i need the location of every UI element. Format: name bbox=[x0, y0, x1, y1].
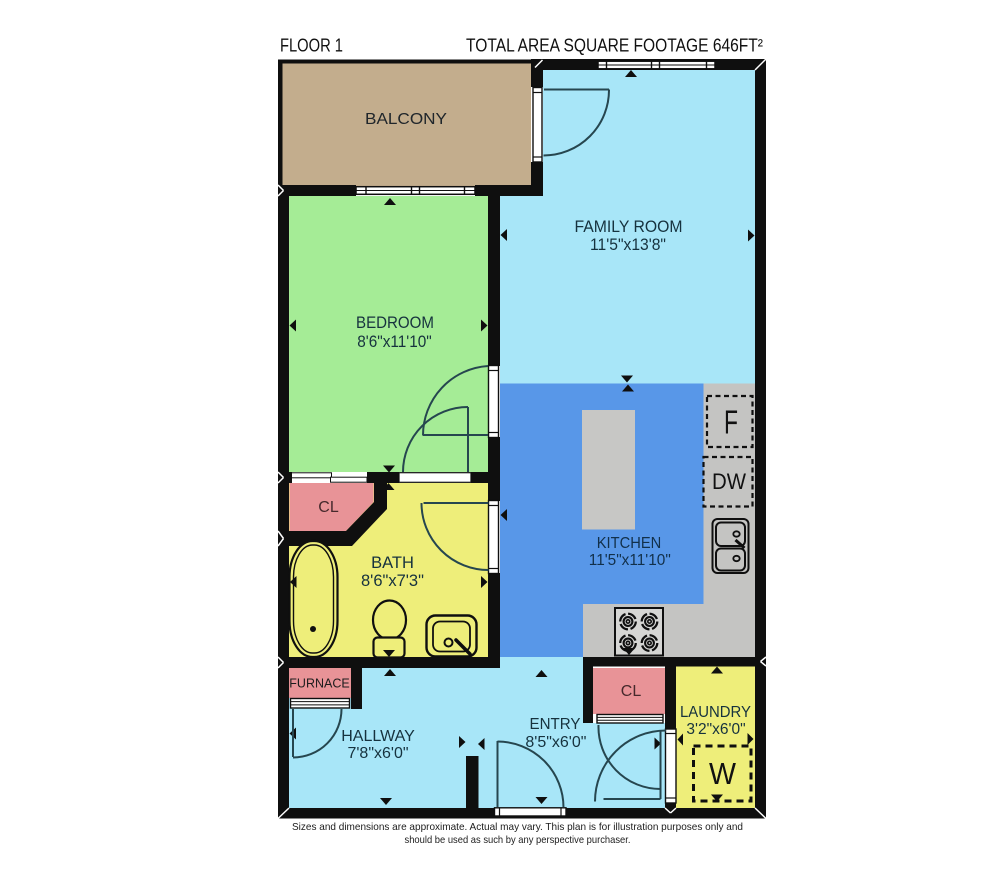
svg-text:8'5"x6'0": 8'5"x6'0" bbox=[525, 734, 586, 751]
svg-text:TOTAL AREA SQUARE FOOTAGE 646F: TOTAL AREA SQUARE FOOTAGE 646FT² bbox=[466, 36, 763, 56]
svg-text:LAUNDRY: LAUNDRY bbox=[680, 704, 751, 721]
svg-text:8'6"x7'3": 8'6"x7'3" bbox=[361, 572, 424, 590]
svg-text:W: W bbox=[709, 756, 737, 791]
svg-text:FAMILY ROOM: FAMILY ROOM bbox=[575, 218, 683, 236]
svg-text:FLOOR 1: FLOOR 1 bbox=[280, 36, 343, 56]
svg-text:DW: DW bbox=[712, 469, 747, 494]
svg-text:HALLWAY: HALLWAY bbox=[341, 728, 415, 745]
svg-text:11'5"x11'10": 11'5"x11'10" bbox=[589, 552, 671, 569]
svg-text:7'8"x6'0": 7'8"x6'0" bbox=[347, 745, 408, 762]
svg-text:BATH: BATH bbox=[371, 554, 414, 572]
svg-text:FURNACE: FURNACE bbox=[289, 677, 349, 691]
svg-text:BALCONY: BALCONY bbox=[365, 111, 447, 128]
svg-text:KITCHEN: KITCHEN bbox=[597, 535, 662, 552]
svg-text:CL: CL bbox=[318, 499, 339, 516]
svg-text:BEDROOM: BEDROOM bbox=[356, 314, 434, 332]
svg-text:F: F bbox=[724, 404, 738, 441]
svg-text:CL: CL bbox=[621, 683, 642, 700]
svg-text:ENTRY: ENTRY bbox=[530, 716, 581, 733]
svg-text:should be used as such by any: should be used as such by any perspectiv… bbox=[405, 834, 631, 846]
svg-text:3'2"x6'0": 3'2"x6'0" bbox=[686, 721, 745, 738]
svg-text:11'5"x13'8": 11'5"x13'8" bbox=[590, 236, 666, 254]
svg-text:8'6"x11'10": 8'6"x11'10" bbox=[357, 333, 432, 351]
svg-text:Sizes and dimensions are appro: Sizes and dimensions are approximate. Ac… bbox=[292, 821, 743, 833]
